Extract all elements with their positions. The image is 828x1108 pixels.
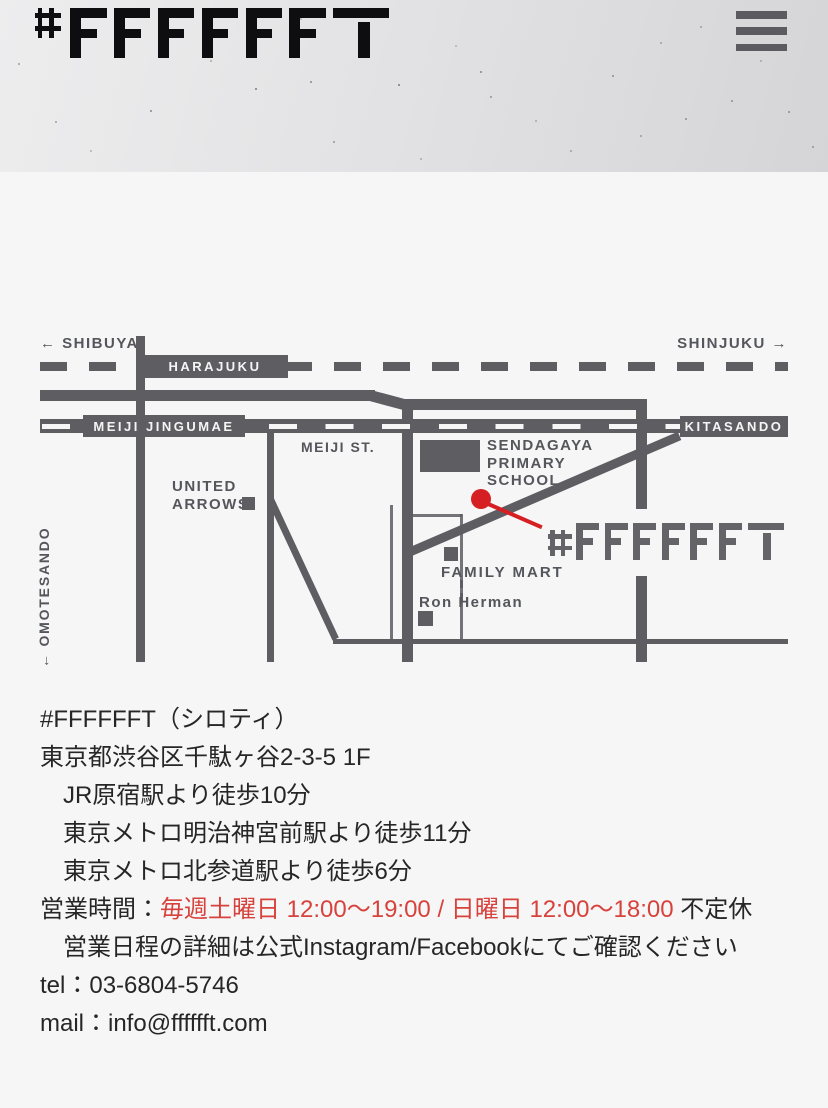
- ron-herman-label: Ron Herman: [419, 595, 523, 610]
- meiji-street-label: MEIJI ST.: [301, 440, 375, 454]
- station-harajuku: HARAJUKU: [142, 355, 288, 378]
- shop-map-logo: [548, 523, 784, 560]
- letter-f-glyph: [719, 523, 742, 560]
- shop-info: #FFFFFFT（シロティ） 東京都渋谷区千駄ヶ谷2-3-5 1F JR原宿駅よ…: [40, 701, 788, 1043]
- omotesando-street-label: ← OMOTESANDO: [36, 518, 51, 668]
- road-horizontal-east: [402, 399, 647, 410]
- letter-f-glyph: [576, 523, 599, 560]
- road-vertical-west: [136, 336, 145, 662]
- direction-shibuya-label: ← SHIBUYA: [40, 336, 139, 351]
- road-horizontal-south: [333, 639, 788, 644]
- hash-glyph: [548, 530, 572, 556]
- letter-t-glyph: [748, 523, 784, 560]
- road-horizontal-west: [40, 390, 375, 401]
- business-hours-suffix: 不定休: [674, 896, 753, 923]
- road-vertical-east-lower: [636, 576, 647, 662]
- block-outline-top: [408, 514, 462, 517]
- shop-name: #FFFFFFT（シロティ）: [40, 701, 788, 739]
- business-hours-value: 毎週土曜日 12:00〜19:00 / 日曜日 12:00〜18:00: [160, 896, 674, 923]
- business-hours-note: 営業日程の詳細は公式Instagram/Facebookにてご確認ください: [40, 929, 788, 967]
- access-route-jr: JR原宿駅より徒歩10分: [40, 777, 788, 815]
- shop-access-page: ← SHIBUYA SHINJUKU → HARAJUKU MEIJI JING…: [0, 0, 828, 1108]
- sendagaya-school-label: SENDAGAYA PRIMARY SCHOOL: [487, 437, 594, 490]
- road-meiji-street: [402, 404, 413, 662]
- station-meiji-jingumae: MEIJI JINGUMAE: [83, 415, 245, 437]
- road-diagonal-branch: [267, 497, 339, 640]
- sendagaya-label-line: SENDAGAYA: [487, 437, 594, 455]
- letter-f-glyph: [662, 523, 685, 560]
- united-arrows-label-1: UNITED: [172, 479, 237, 494]
- letter-f-glyph: [633, 523, 656, 560]
- business-hours-label: 営業時間：: [40, 896, 160, 923]
- letter-f-glyph: [605, 523, 628, 560]
- letter-f-glyph: [690, 523, 713, 560]
- family-mart-label: FAMILY MART: [441, 565, 564, 580]
- sendagaya-label-line: PRIMARY: [487, 455, 594, 473]
- united-arrows-label-2: ARROWS: [172, 497, 249, 512]
- telephone[interactable]: tel：03-6804-5746: [40, 967, 788, 1005]
- ron-herman-building: [418, 611, 433, 626]
- access-route-meiji-jingumae: 東京メトロ明治神宮前駅より徒歩11分: [40, 815, 788, 853]
- shop-location-marker[interactable]: [471, 489, 491, 509]
- direction-shinjuku-label: SHINJUKU →: [640, 336, 788, 351]
- road-vertical-center: [267, 429, 274, 662]
- business-hours: 営業時間：毎週土曜日 12:00〜19:00 / 日曜日 12:00〜18:00…: [40, 891, 788, 929]
- sendagaya-label-line: SCHOOL: [487, 472, 594, 490]
- station-kitasando: KITASANDO: [680, 416, 788, 437]
- family-mart-building: [444, 547, 458, 561]
- shop-address: 東京都渋谷区千駄ヶ谷2-3-5 1F: [40, 739, 788, 777]
- block-outline-west: [390, 505, 393, 643]
- email[interactable]: mail：info@fffffft.com: [40, 1005, 788, 1043]
- united-arrows-building: [242, 497, 255, 510]
- sendagaya-school-building: [420, 440, 480, 472]
- access-route-kitasando: 東京メトロ北参道駅より徒歩6分: [40, 853, 788, 891]
